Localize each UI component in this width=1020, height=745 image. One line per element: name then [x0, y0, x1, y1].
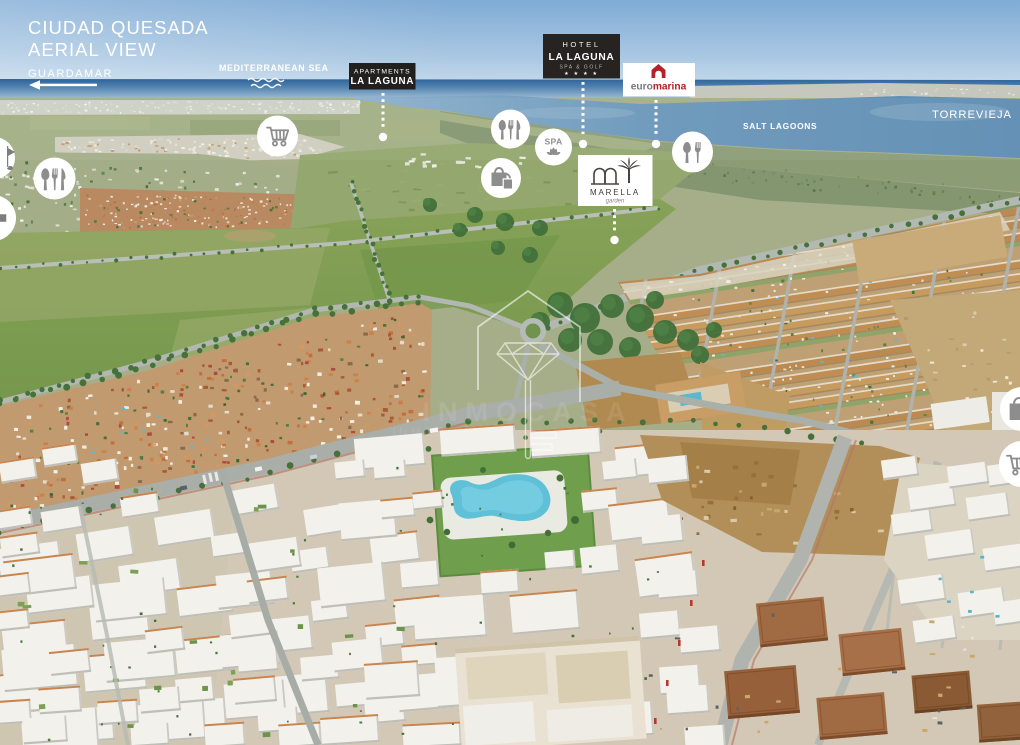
svg-text:garden: garden [606, 199, 625, 205]
svg-text:HOTEL: HOTEL [562, 40, 600, 49]
svg-text:LA LAGUNA: LA LAGUNA [350, 76, 414, 87]
svg-text:CIUDAD QUESADA: CIUDAD QUESADA [28, 17, 209, 38]
svg-text:INMOCASA: INMOCASA [423, 397, 634, 427]
svg-text:TORREVIEJA: TORREVIEJA [932, 109, 1012, 121]
svg-text:MARELLA: MARELLA [590, 188, 640, 197]
svg-text:INMOBILIARIA: INMOBILIARIA [392, 427, 511, 439]
svg-text:AERIAL VIEW: AERIAL VIEW [28, 39, 157, 60]
svg-text:GUARDAMAR: GUARDAMAR [28, 68, 113, 80]
svg-text:LA LAGUNA: LA LAGUNA [549, 52, 615, 63]
svg-text:euromarina: euromarina [631, 82, 687, 93]
svg-text:APARTMENTS: APARTMENTS [354, 69, 411, 76]
svg-text:★ ★ ★ ★: ★ ★ ★ ★ [564, 71, 599, 77]
svg-text:SPA & GOLF: SPA & GOLF [559, 65, 603, 71]
svg-text:SPA: SPA [544, 136, 562, 146]
svg-text:SALT LAGOONS: SALT LAGOONS [743, 121, 817, 131]
svg-text:MEDITERRANEAN SEA: MEDITERRANEAN SEA [219, 63, 329, 73]
